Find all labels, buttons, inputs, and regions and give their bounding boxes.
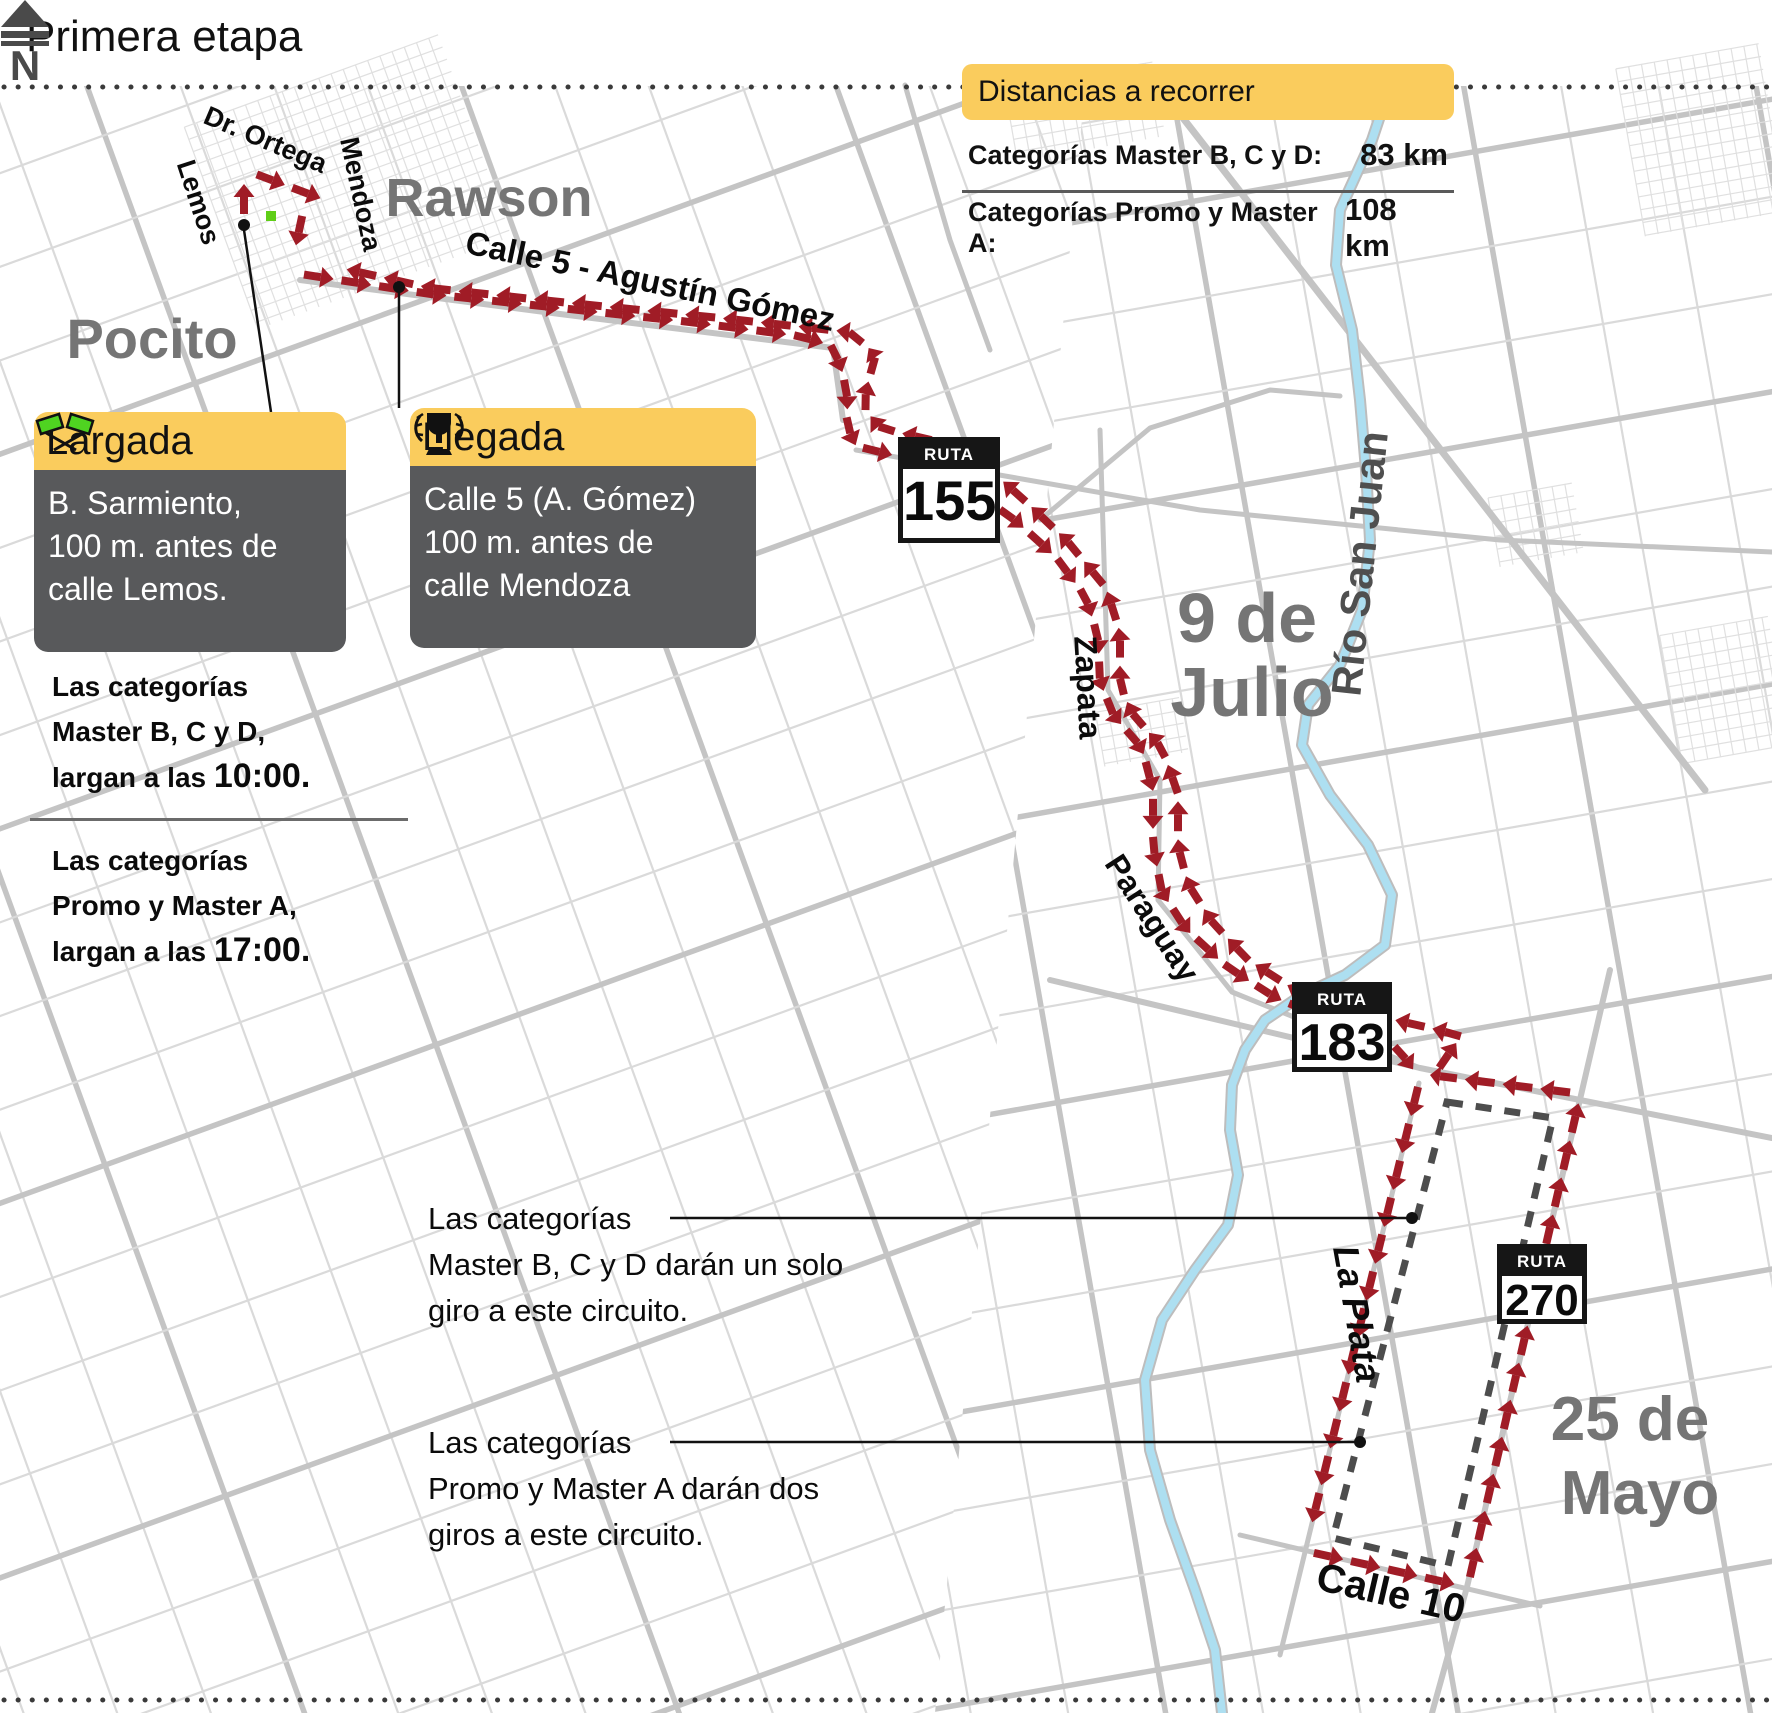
circuit-note-line: Las categorías	[428, 1196, 898, 1242]
ruta-shield-tag: RUTA	[903, 442, 995, 469]
start-point-marker	[266, 211, 276, 221]
distance-value: 83 km	[1360, 137, 1448, 173]
start-time-line: Las categorías	[52, 664, 432, 709]
circuit-note-line: Las categorías	[428, 1420, 898, 1466]
street-label: Paraguay	[1098, 848, 1207, 989]
crossed-flags-icon	[34, 412, 96, 452]
start-time-line: largan a las 10:00.	[52, 754, 432, 800]
llegada-header: Llegada	[410, 408, 756, 466]
circuit-note-line: Promo y Master A darán dos	[428, 1466, 898, 1512]
circuit-note-line: Master B, C y D darán un solo	[428, 1242, 898, 1288]
llegada-line: calle Mendoza	[424, 564, 742, 607]
distances-panel: Distancias a recorrer Categorías Master …	[962, 64, 1454, 263]
start-time-value: 17:00.	[214, 931, 310, 969]
start-time-value: 10:00.	[214, 757, 310, 795]
llegada-card: Llegada Calle 5 (A. Gómez)100 m. antes d…	[410, 408, 756, 648]
start-time-line: Master B, C y D,	[52, 709, 432, 754]
largada-card: Largada B. Sarmiento,100 m. antes decall…	[34, 412, 346, 652]
place-label: Julio	[1170, 653, 1333, 731]
place-label: 25 de	[1551, 1385, 1710, 1454]
place-label: Pocito	[66, 307, 237, 370]
distance-label: Categorías Master B, C y D:	[968, 140, 1322, 171]
start-time-line: Promo y Master A,	[52, 883, 432, 928]
llegada-body: Calle 5 (A. Gómez)100 m. antes decalle M…	[410, 466, 756, 648]
ruta-shield-155: RUTA155	[898, 437, 1000, 543]
circuit-note-promo: Las categoríasPromo y Master A darán dos…	[428, 1420, 898, 1558]
circuit-note-master: Las categoríasMaster B, C y D darán un s…	[428, 1196, 898, 1334]
distance-row: Categorías Master B, C y D:83 km	[962, 120, 1454, 193]
circuit-note-line: giros a este circuito.	[428, 1512, 898, 1558]
llegada-line: Calle 5 (A. Gómez)	[424, 478, 742, 521]
llegada-line: 100 m. antes de	[424, 521, 742, 564]
largada-body: B. Sarmiento,100 m. antes decalle Lemos.	[34, 470, 346, 652]
street-label: Zapata	[1067, 635, 1108, 740]
largada-line: 100 m. antes de	[48, 525, 332, 568]
place-label: 9 de	[1177, 579, 1317, 657]
leader-dot	[1354, 1436, 1366, 1448]
start-time-line: Las categorías	[52, 838, 432, 883]
distance-row: Categorías Promo y Master A:108 km	[962, 193, 1454, 263]
distances-header: Distancias a recorrer	[962, 64, 1454, 120]
place-label: Rawson	[385, 168, 592, 228]
distance-value: 108 km	[1345, 192, 1448, 264]
largada-line: B. Sarmiento,	[48, 482, 332, 525]
ruta-shield-number: 183	[1297, 1014, 1387, 1074]
ruta-shield-tag: RUTA	[1502, 1249, 1582, 1276]
times-divider	[30, 818, 408, 821]
largada-line: calle Lemos.	[48, 568, 332, 611]
ruta-shield-number: 155	[903, 469, 995, 533]
leader-dot	[393, 281, 405, 293]
largada-header: Largada	[34, 412, 346, 470]
trophy-icon	[410, 408, 468, 456]
leader-dot	[1406, 1212, 1418, 1224]
street-label: Dr. Ortega	[200, 100, 333, 179]
start-times-master: Las categoríasMaster B, C y D,largan a l…	[52, 664, 432, 800]
page-title: Primera etapa	[26, 12, 302, 62]
leader-dot	[238, 219, 250, 231]
start-time-line: largan a las 17:00.	[52, 928, 432, 974]
ruta-shield-270: RUTA270	[1497, 1244, 1587, 1324]
start-times-promo: Las categoríasPromo y Master A,largan a …	[52, 838, 432, 974]
north-arrow-icon: N	[0, 0, 50, 82]
ruta-shield-tag: RUTA	[1297, 987, 1387, 1014]
circuit-note-line: giro a este circuito.	[428, 1288, 898, 1334]
distances-rows: Categorías Master B, C y D:83 kmCategorí…	[962, 120, 1454, 263]
infographic-stage: Dr. OrtegaLemosMendozaCalle 5 - Agustín …	[0, 0, 1772, 1713]
ruta-shield-183: RUTA183	[1292, 982, 1392, 1072]
distance-label: Categorías Promo y Master A:	[968, 197, 1345, 259]
north-letter: N	[10, 42, 40, 82]
ruta-shield-number: 270	[1502, 1276, 1582, 1327]
place-label: Mayo	[1561, 1459, 1719, 1528]
